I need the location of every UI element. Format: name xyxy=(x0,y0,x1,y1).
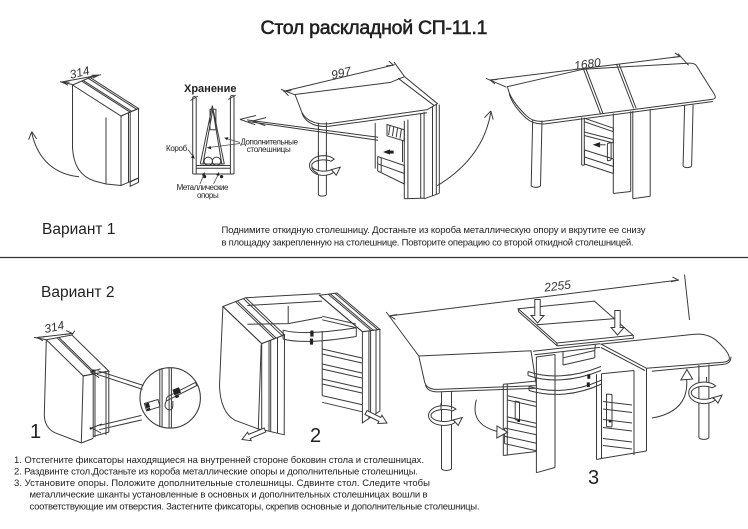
svg-text:Стол раскладной СП-11.1: Стол раскладной СП-11.1 xyxy=(261,17,488,39)
svg-text:2. Раздвинте стол.Достаньте и: 2. Раздвинте стол.Достаньте из короба ме… xyxy=(14,467,418,478)
svg-text:Короб: Короб xyxy=(166,144,188,153)
svg-text:3. Установите опоры. Положит: 3. Установите опоры. Положите дополнител… xyxy=(14,478,430,489)
svg-text:Поднимите откидную столешницу.: Поднимите откидную столешницу. Достаньте… xyxy=(222,225,646,236)
svg-text:Вариант 2: Вариант 2 xyxy=(41,284,114,301)
svg-text:3: 3 xyxy=(588,467,599,489)
svg-text:в площадку закрепленную на сто: в площадку закрепленную на столешнице. П… xyxy=(222,238,634,249)
svg-text:Хранение: Хранение xyxy=(184,83,236,95)
svg-text:1: 1 xyxy=(30,421,41,443)
svg-text:соответствующие им отверстия.: соответствующие им отверстия. Застегните… xyxy=(30,501,480,512)
svg-text:1. Отстегните фиксаторы находя: 1. Отстегните фиксаторы находящиеся на в… xyxy=(14,455,424,466)
svg-text:металлические шканты установ: металлические шканты установленные в осн… xyxy=(30,490,428,501)
svg-text:столешницы: столешницы xyxy=(247,145,291,154)
svg-text:опоры: опоры xyxy=(197,191,219,200)
svg-text:2: 2 xyxy=(310,425,321,447)
svg-text:Вариант 1: Вариант 1 xyxy=(42,221,115,238)
